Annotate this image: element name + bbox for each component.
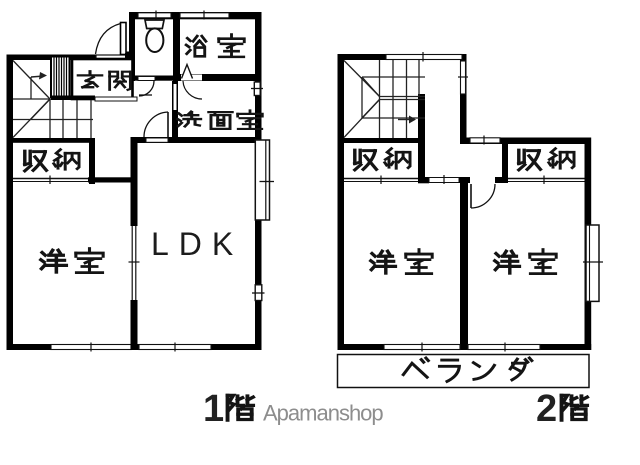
svg-text:1: 1 — [203, 388, 224, 430]
svg-text:LDK: LDK — [151, 226, 243, 262]
svg-text:Apamanshop: Apamanshop — [263, 401, 383, 426]
svg-text:2: 2 — [536, 388, 557, 430]
